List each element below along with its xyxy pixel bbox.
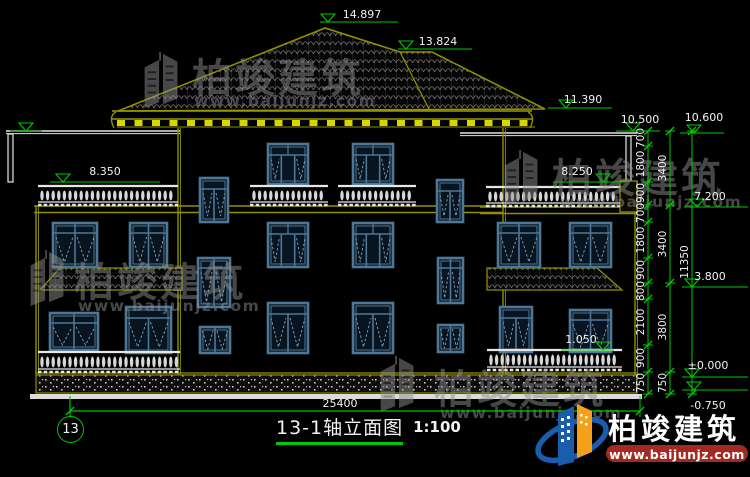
window <box>438 325 463 352</box>
door <box>437 180 463 222</box>
svg-text:14.897: 14.897 <box>343 8 382 21</box>
rafter-block <box>275 120 283 126</box>
logo-url-bar: www.baijunjz.com <box>606 445 748 462</box>
svg-text:800: 800 <box>635 281 647 301</box>
svg-text:www.baijunjz.com: www.baijunjz.com <box>194 92 376 110</box>
window <box>438 258 463 303</box>
svg-text:750: 750 <box>657 373 669 393</box>
rafter-block <box>362 120 370 126</box>
rafter-block <box>450 120 458 126</box>
rafter-block <box>327 120 335 126</box>
window <box>268 144 308 184</box>
svg-text:11350: 11350 <box>679 245 691 278</box>
rafter-block <box>187 120 195 126</box>
svg-text:900: 900 <box>635 260 647 280</box>
logo-company-name: 柏竣建筑 <box>608 406 740 448</box>
rafter-block <box>222 120 230 126</box>
svg-text:25400: 25400 <box>323 397 358 410</box>
window <box>50 313 98 350</box>
rafter-block <box>502 120 510 126</box>
rafter-block <box>310 120 318 126</box>
drawing-title: 13-1轴立面图 <box>276 413 403 445</box>
rafter-block <box>205 120 213 126</box>
rafter-block <box>485 120 493 126</box>
window <box>498 223 540 267</box>
svg-text:8.350: 8.350 <box>89 165 121 178</box>
svg-text:900: 900 <box>635 348 647 368</box>
svg-text:±0.000: ±0.000 <box>688 359 729 372</box>
svg-text:10.500: 10.500 <box>621 113 660 126</box>
rafter-block <box>292 120 300 126</box>
rafter-block <box>170 120 178 126</box>
rafter-block <box>117 120 125 126</box>
svg-text:3400: 3400 <box>657 231 669 258</box>
terrace-post <box>8 134 13 182</box>
rafter-block <box>135 120 143 126</box>
svg-text:1.050: 1.050 <box>565 333 597 346</box>
logo-url-text: www.baijunjz.com <box>609 447 745 462</box>
svg-text:3800: 3800 <box>657 314 669 341</box>
grid-bubble-13: 13 <box>57 416 84 443</box>
logo-building-icon <box>534 400 610 472</box>
rafter-block <box>380 120 388 126</box>
svg-text:3400: 3400 <box>657 155 669 182</box>
door <box>268 303 308 353</box>
rafter-block <box>152 120 160 126</box>
svg-text:10.600: 10.600 <box>685 111 724 124</box>
door <box>200 178 228 222</box>
drawing-title-block: 13-1轴立面图1:100 <box>276 413 461 445</box>
rafter-block <box>240 120 248 126</box>
svg-text:1800: 1800 <box>635 227 647 254</box>
svg-text:900: 900 <box>635 183 647 203</box>
company-logo: 柏竣建筑 www.baijunjz.com <box>534 400 750 474</box>
window <box>268 223 308 267</box>
window <box>570 223 611 267</box>
svg-text:13.824: 13.824 <box>419 35 458 48</box>
window <box>200 327 230 353</box>
rafter-block <box>345 120 353 126</box>
rafter-block <box>415 120 423 126</box>
grid-bubble-label: 13 <box>62 422 79 437</box>
rafter-block <box>432 120 440 126</box>
svg-text:www.baijunjz.com: www.baijunjz.com <box>78 297 260 315</box>
rafter-block <box>520 120 528 126</box>
rafter-block <box>397 120 405 126</box>
svg-text:2100: 2100 <box>635 309 647 336</box>
rafter-block <box>257 120 265 126</box>
svg-text:700: 700 <box>635 203 647 223</box>
svg-text:7.200: 7.200 <box>694 190 726 203</box>
drawing-scale: 1:100 <box>413 418 461 436</box>
svg-text:750: 750 <box>635 373 647 393</box>
window <box>353 223 393 267</box>
svg-text:11.390: 11.390 <box>564 93 603 106</box>
svg-text:1800: 1800 <box>635 151 647 178</box>
door <box>500 307 532 352</box>
svg-text:8.250: 8.250 <box>561 165 593 178</box>
svg-text:3.800: 3.800 <box>694 270 726 283</box>
cad-canvas: 柏竣建筑www.baijunjz.com柏竣建筑www.baijunjz.com… <box>0 0 750 477</box>
door <box>353 303 393 353</box>
rafter-block <box>467 120 475 126</box>
window <box>353 144 393 184</box>
